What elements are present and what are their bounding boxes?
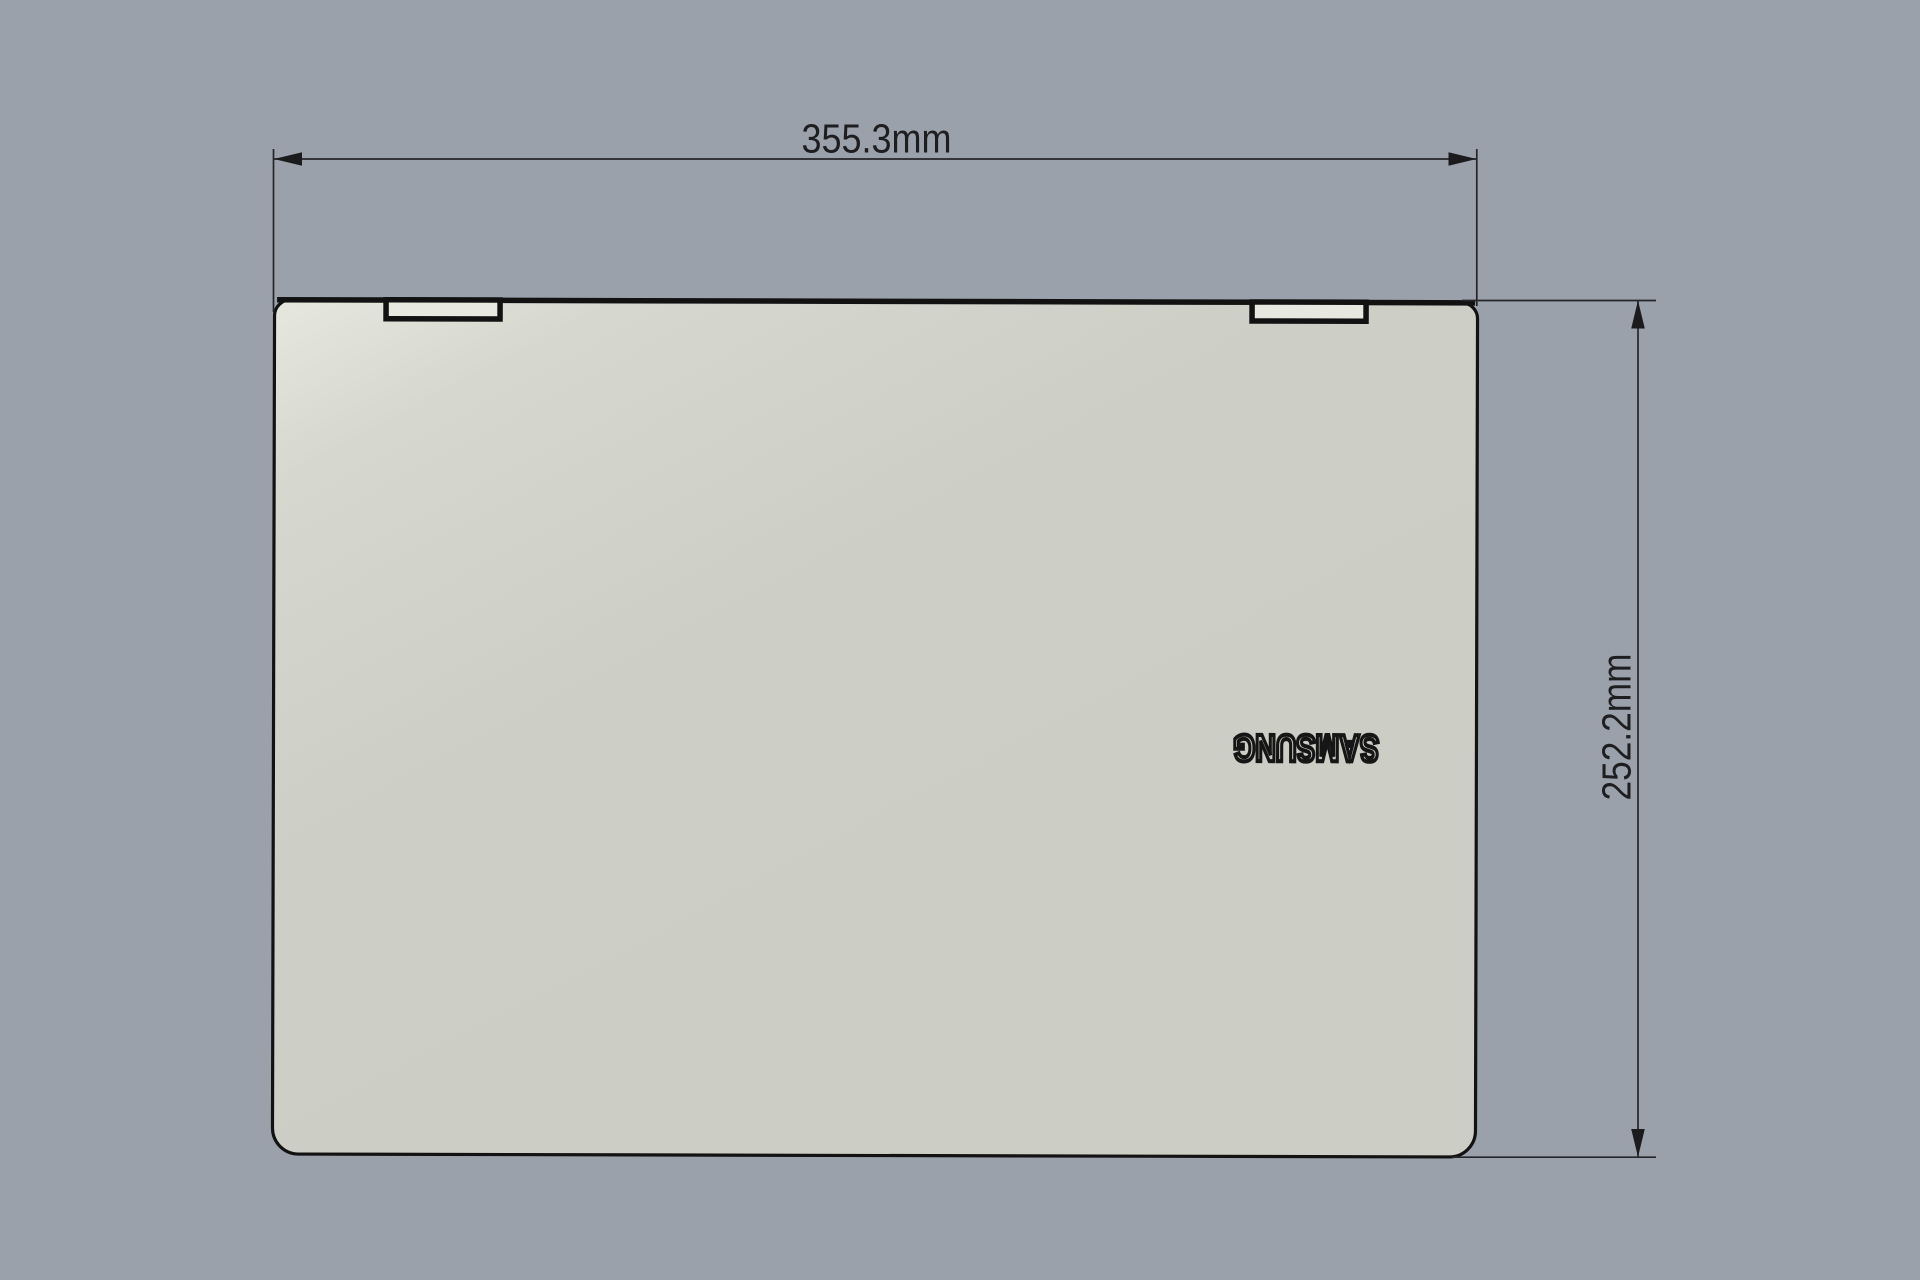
svg-text:355.3mm: 355.3mm: [802, 116, 952, 162]
svg-text:SAMSUNG: SAMSUNG: [1233, 726, 1379, 768]
svg-text:252.2mm: 252.2mm: [1594, 654, 1640, 801]
